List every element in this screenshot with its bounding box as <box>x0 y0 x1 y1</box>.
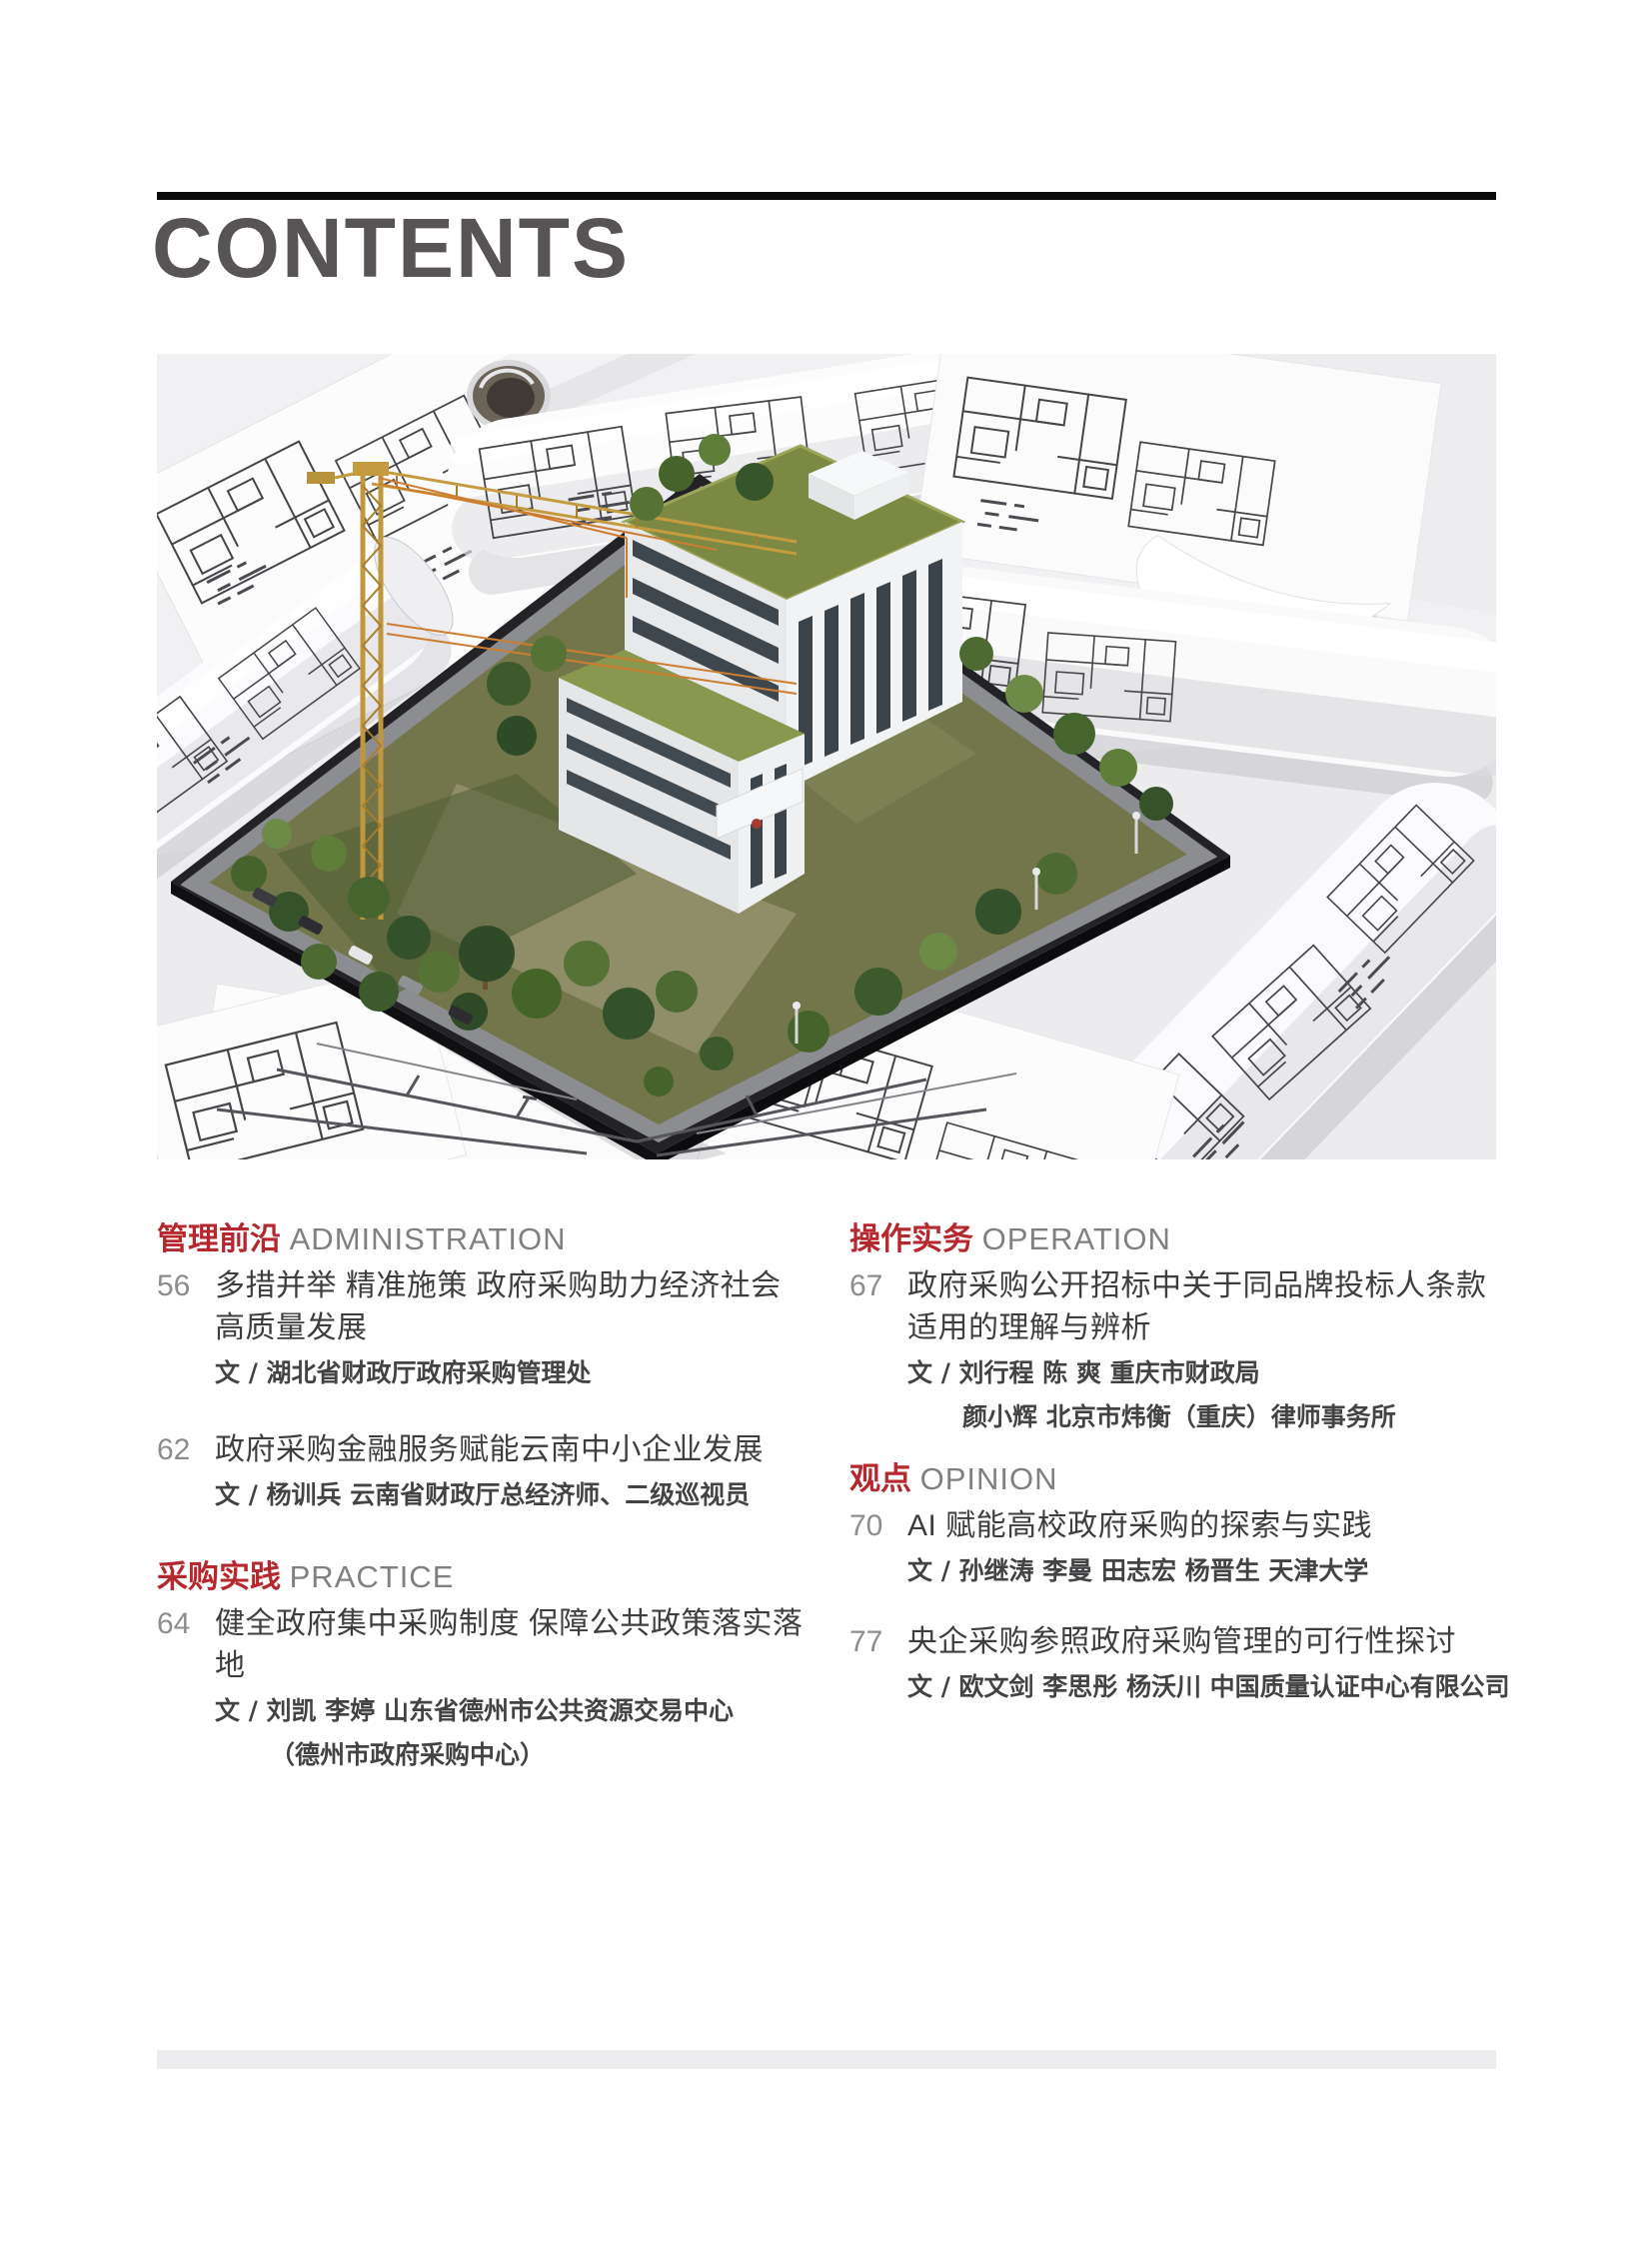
entry-page-number: 62 <box>157 1429 215 1471</box>
toc-entry-67: 67 政府采购公开招标中关于同品牌投标人条款适用的理解与辨析 文 / 刘行程 陈… <box>849 1265 1513 1439</box>
entry-title: AI 赋能高校政府采购的探索与实践 <box>907 1505 1513 1547</box>
entry-page-number: 77 <box>849 1621 907 1663</box>
architecture-model-illustration <box>157 354 1496 1159</box>
toc-entry-70: 70 AI 赋能高校政府采购的探索与实践 文 / 孙继涛 李曼 田志宏 杨晋生 … <box>849 1505 1513 1593</box>
entry-author-line: 文 / 欧文剑 李思彤 杨沃川 中国质量认证中心有限公司 <box>907 1665 1513 1709</box>
section-zh-label: 操作实务 <box>849 1221 973 1256</box>
section-head-practice: 采购实践 PRACTICE <box>157 1559 809 1595</box>
entry-author-line: （德州市政府采购中心） <box>215 1733 809 1777</box>
toc-entry-64: 64 健全政府集中采购制度 保障公共政策落实落地 文 / 刘凯 李婷 山东省德州… <box>157 1603 809 1777</box>
entry-title: 政府采购公开招标中关于同品牌投标人条款适用的理解与辨析 <box>907 1265 1513 1349</box>
section-head-operation: 操作实务 OPERATION <box>849 1221 1513 1257</box>
toc-entry-77: 77 央企采购参照政府采购管理的可行性探讨 文 / 欧文剑 李思彤 杨沃川 中国… <box>849 1621 1513 1709</box>
toc-right-column: 操作实务 OPERATION 67 政府采购公开招标中关于同品牌投标人条款适用的… <box>849 1221 1513 1709</box>
section-en-label: ADMINISTRATION <box>290 1221 567 1256</box>
entry-title: 多措并举 精准施策 政府采购助力经济社会高质量发展 <box>215 1265 809 1349</box>
entry-author-line: 文 / 孙继涛 李曼 田志宏 杨晋生 天津大学 <box>907 1549 1513 1593</box>
entry-page-number: 67 <box>849 1265 907 1307</box>
entry-title: 政府采购金融服务赋能云南中小企业发展 <box>215 1429 809 1471</box>
toc-entry-62: 62 政府采购金融服务赋能云南中小企业发展 文 / 杨训兵 云南省财政厅总经济师… <box>157 1429 809 1517</box>
entry-page-number: 56 <box>157 1265 215 1307</box>
entry-author-line: 文 / 杨训兵 云南省财政厅总经济师、二级巡视员 <box>215 1473 809 1517</box>
contents-page: CONTENTS <box>0 0 1652 2243</box>
top-rule <box>157 192 1496 200</box>
hero-image: Photo: architectural scale model of a wh… <box>157 354 1496 1159</box>
entry-page-number: 64 <box>157 1603 215 1645</box>
toc-entry-56: 56 多措并举 精准施策 政府采购助力经济社会高质量发展 文 / 湖北省财政厅政… <box>157 1265 809 1395</box>
section-zh-label: 管理前沿 <box>157 1221 281 1256</box>
section-zh-label: 采购实践 <box>157 1559 281 1594</box>
toc-left-column: 管理前沿 ADMINISTRATION 56 多措并举 精准施策 政府采购助力经… <box>157 1221 809 1777</box>
entry-author-line: 文 / 刘行程 陈 爽 重庆市财政局 <box>907 1351 1513 1395</box>
section-en-label: OPINION <box>920 1461 1058 1496</box>
section-en-label: PRACTICE <box>290 1559 455 1594</box>
entry-page-number: 70 <box>849 1505 907 1547</box>
section-zh-label: 观点 <box>849 1461 911 1496</box>
page-title: CONTENTS <box>152 206 630 290</box>
section-head-opinion: 观点 OPINION <box>849 1461 1513 1497</box>
entry-author-line: 文 / 刘凯 李婷 山东省德州市公共资源交易中心 <box>215 1689 809 1733</box>
entry-author-line: 文 / 湖北省财政厅政府采购管理处 <box>215 1351 809 1395</box>
section-head-administration: 管理前沿 ADMINISTRATION <box>157 1221 809 1257</box>
entry-title: 健全政府集中采购制度 保障公共政策落实落地 <box>215 1603 809 1687</box>
entry-title: 央企采购参照政府采购管理的可行性探讨 <box>907 1621 1513 1663</box>
section-en-label: OPERATION <box>982 1221 1171 1256</box>
entry-author-line: 颜小辉 北京市炜衡（重庆）律师事务所 <box>907 1395 1513 1439</box>
footer-bar <box>157 2050 1496 2069</box>
